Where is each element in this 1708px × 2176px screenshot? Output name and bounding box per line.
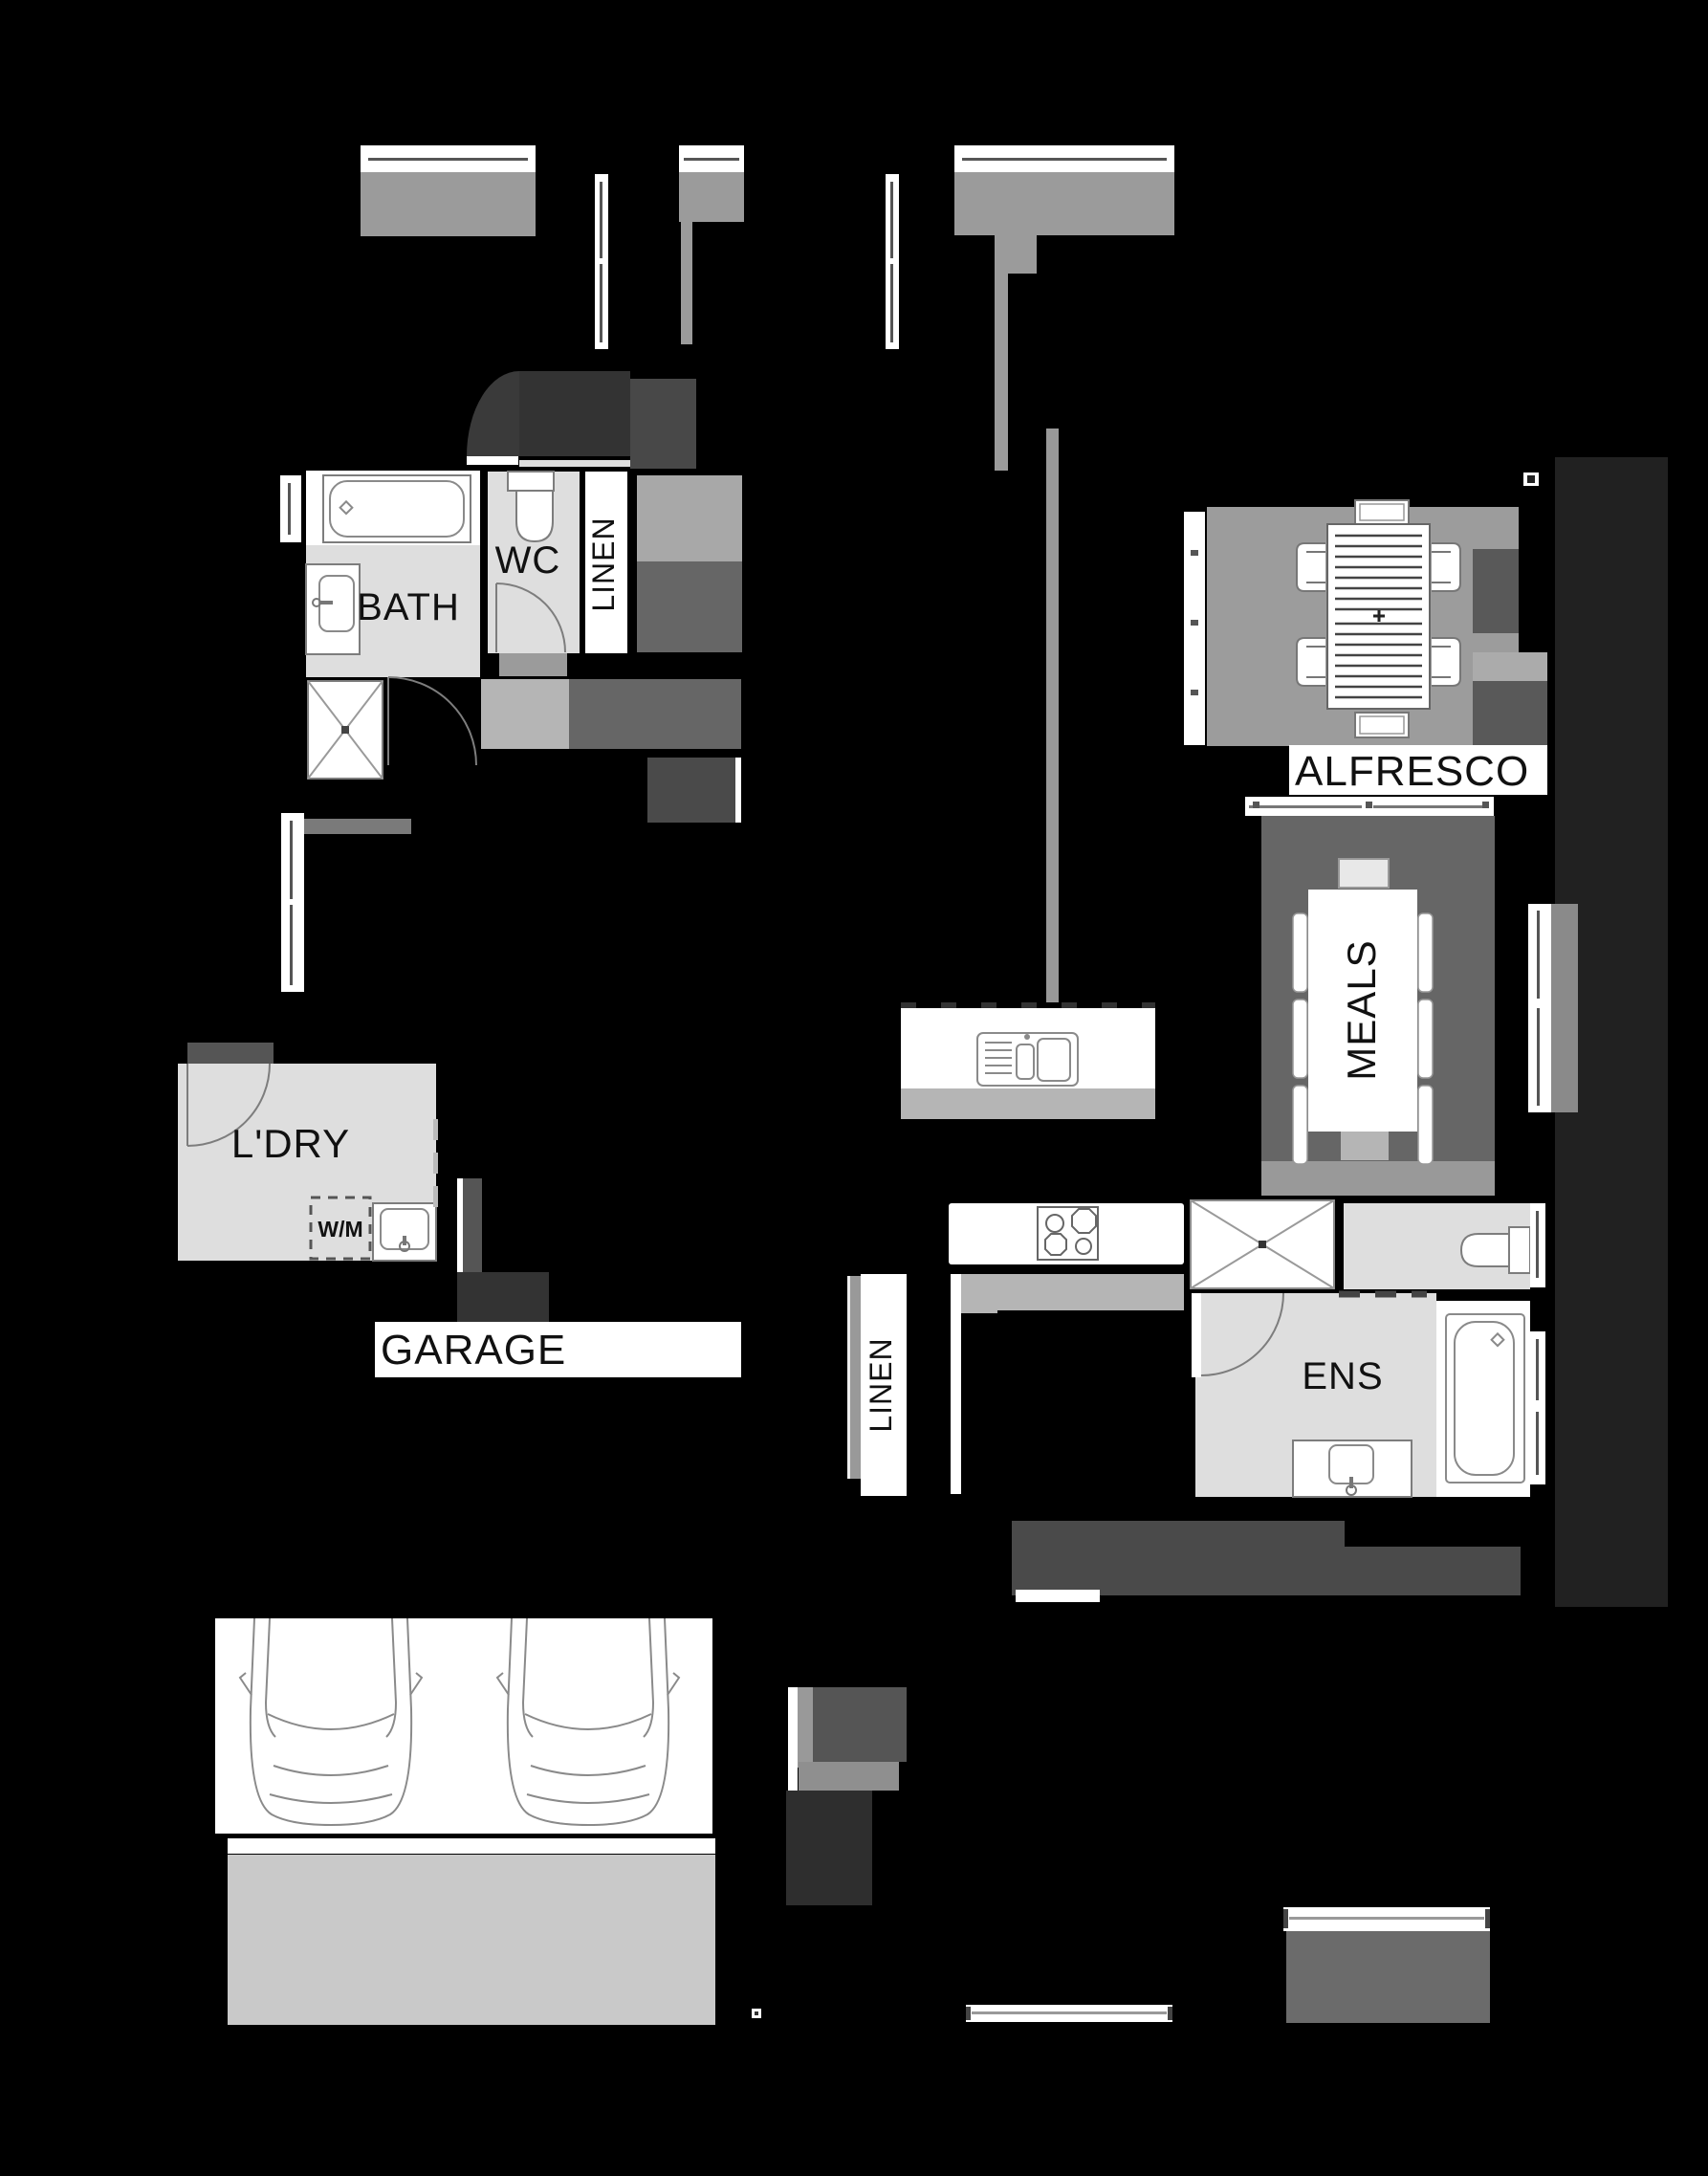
hall-wall-strip xyxy=(1046,429,1059,1002)
laundry-tub xyxy=(373,1203,436,1261)
kitchen-sink xyxy=(977,1033,1078,1086)
laundry-room: W/M L'DRY xyxy=(178,1043,438,1261)
linen-bath-label: LINEN xyxy=(586,517,621,611)
garage-label: GARAGE xyxy=(381,1327,566,1374)
entry-door-mask xyxy=(467,371,696,469)
linen-bath: LINEN xyxy=(585,472,627,653)
driveway-slab xyxy=(228,1855,715,2025)
garage-floor xyxy=(215,1618,712,1834)
alfresco-table xyxy=(1327,524,1430,709)
alfresco-sliding-door xyxy=(1245,797,1494,816)
wc-label: WC xyxy=(495,539,561,582)
alfresco-chair xyxy=(1432,638,1460,686)
ensuite-label: ENS xyxy=(1302,1355,1383,1397)
meals-label: MEALS xyxy=(1339,939,1384,1080)
floorplan-drawing: BATH WC LINEN xyxy=(0,0,1708,2176)
bath-label: BATH xyxy=(357,586,460,628)
meals-chair-top xyxy=(1339,859,1389,888)
alfresco-window xyxy=(1184,512,1205,745)
garage-door-strip xyxy=(228,1838,715,1854)
bath-shower xyxy=(308,681,383,779)
meals-chair-bottom xyxy=(1341,1132,1389,1160)
linen-hall-label: LINEN xyxy=(864,1337,898,1432)
ensuite-vanity xyxy=(1293,1440,1412,1497)
kitchen-island xyxy=(901,1005,1155,1119)
washing-machine-label: W/M xyxy=(318,1217,362,1242)
alfresco-chair xyxy=(1432,543,1460,591)
ensuite-shower xyxy=(1191,1200,1334,1288)
ensuite-bathtub xyxy=(1436,1301,1530,1497)
alfresco-chair xyxy=(1297,638,1325,686)
bathtub xyxy=(323,475,471,542)
laundry-label: L'DRY xyxy=(231,1121,350,1166)
ensuite-toilet xyxy=(1461,1227,1530,1273)
meals-window xyxy=(1528,904,1578,1112)
ensuite: ENS xyxy=(1191,1200,1545,1497)
alfresco-chair xyxy=(1297,543,1325,591)
wc-room: WC xyxy=(488,472,580,676)
ensuite-windows xyxy=(1530,1203,1545,1484)
floorplan-canvas: BATH WC LINEN xyxy=(0,0,1708,2176)
bath-vanity xyxy=(306,564,360,654)
wc-threshold xyxy=(499,653,567,676)
alfresco-bench-top xyxy=(1355,500,1409,524)
alfresco-label: ALFRESCO xyxy=(1295,748,1529,795)
alfresco-bench-bottom xyxy=(1355,713,1409,737)
